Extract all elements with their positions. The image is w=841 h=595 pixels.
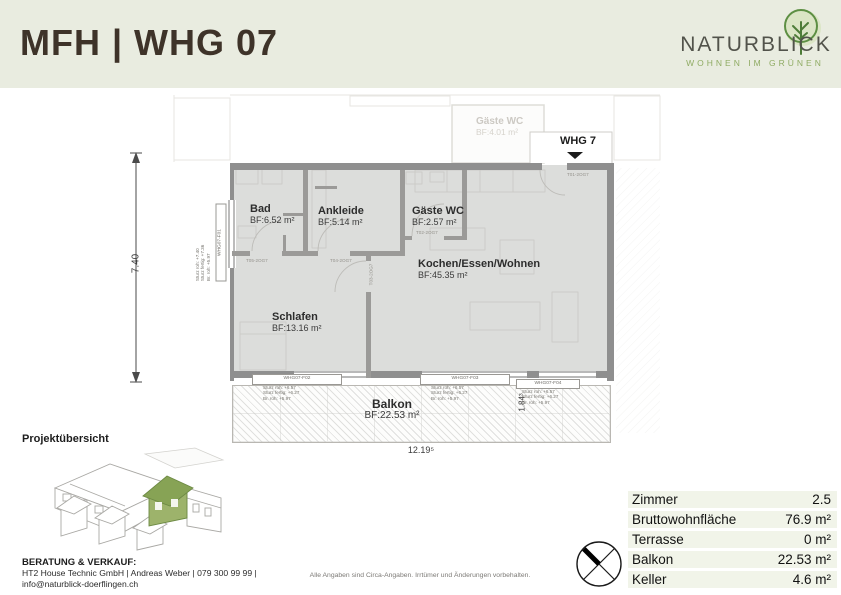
summary-label: Balkon: [632, 552, 673, 567]
window-data-f01: Sturz roh: +7.40 Sturz fertig: +7.36 Br.…: [195, 199, 211, 281]
neighbor-room-name: Gäste WC: [476, 116, 523, 127]
window-data-line: Br. roh: +5.97: [263, 396, 299, 401]
room-name: Ankleide: [318, 205, 364, 217]
summary-value: 0 m²: [804, 532, 831, 547]
window-data-f02: Sturz roh: +6.57 Sturz fertig: +6.27 Br.…: [263, 385, 299, 401]
summary-value: 76.9 m²: [785, 512, 831, 527]
summary-label: Keller: [632, 572, 667, 587]
project-overview-image: [25, 446, 225, 551]
door-label-t04: T04-2OG7: [330, 258, 352, 263]
summary-row-keller: Keller 4.6 m²: [628, 571, 837, 588]
door-label-t02: T02-2OG7: [416, 230, 438, 235]
room-label-gaeste-wc: Gäste WC BF:2.57 m²: [412, 205, 464, 228]
brand-name: NATURBLICK: [680, 33, 832, 57]
summary-row-zimmer: Zimmer 2.5: [628, 491, 837, 508]
room-area: BF:45.35 m²: [418, 270, 540, 281]
summary-table: Zimmer 2.5 Bruttowohnfläche 76.9 m² Terr…: [628, 491, 837, 591]
window-data-line: Br. roh: +5.97: [206, 199, 211, 281]
project-overview-heading: Projektübersicht: [22, 433, 109, 445]
room-label-bad: Bad BF:6.52 m²: [250, 203, 295, 226]
summary-value: 22.53 m²: [778, 552, 831, 567]
room-name: Bad: [250, 203, 295, 215]
summary-row-balkon: Balkon 22.53 m²: [628, 551, 837, 568]
room-name: Gäste WC: [412, 205, 464, 217]
contact-heading: BERATUNG & VERKAUF:: [22, 557, 257, 568]
room-label-schlafen: Schlafen BF:13.16 m²: [272, 311, 322, 334]
window-data-f04: Sturz roh: +6.57 Sturz fertig: +6.27 Br.…: [522, 389, 558, 405]
page-title: MFH | WHG 07: [20, 22, 278, 64]
brand-logo: NATURBLICK WOHNEN IM GRÜNEN: [672, 4, 832, 84]
neighbor-room-area: BF:4.01 m²: [476, 127, 523, 137]
room-label-balkon: Balkon BF:22.53 m²: [332, 398, 452, 421]
neighbor-room-label: Gäste WC BF:4.01 m²: [476, 116, 523, 137]
summary-label: Bruttowohnfläche: [632, 512, 736, 527]
unit-marker: WHG 7: [548, 135, 608, 147]
dimension-height: 7.40: [131, 224, 142, 304]
room-area: BF:6.52 m²: [250, 215, 295, 226]
summary-row-bruttowohnflaeche: Bruttowohnfläche 76.9 m²: [628, 511, 837, 528]
window-tag-f02: WHG07-F02: [252, 374, 342, 385]
brand-tagline: WOHNEN IM GRÜNEN: [678, 58, 832, 68]
room-area: BF:22.53 m²: [332, 410, 452, 421]
dimension-width: 12.19⁵: [232, 445, 610, 455]
window-data-f03: Sturz roh: +6.57 Sturz fertig: +6.27 Br.…: [431, 385, 467, 401]
room-label-ankleide: Ankleide BF:5.14 m²: [318, 205, 364, 228]
window-tag-f03: WHG07-F03: [420, 374, 510, 385]
north-compass-icon: [573, 538, 625, 590]
contact-line-1: HT2 House Technic GmbH | Andreas Weber |…: [22, 568, 257, 579]
room-area: BF:2.57 m²: [412, 217, 464, 228]
room-name: Kochen/Essen/Wohnen: [418, 258, 540, 270]
door-label-t01: T01-2OG7: [567, 172, 589, 177]
contact-block: BERATUNG & VERKAUF: HT2 House Technic Gm…: [22, 557, 257, 590]
summary-value: 2.5: [812, 492, 831, 507]
window-data-line: Br. roh: +5.97: [522, 400, 558, 405]
window-tag-f04: WHG07-F04: [516, 379, 580, 389]
door-label-t03: T03-2OG7: [369, 250, 374, 300]
door-label-t05: T05-2OG7: [246, 258, 268, 263]
room-area: BF:13.16 m²: [272, 323, 322, 334]
room-name: Schlafen: [272, 311, 322, 323]
room-label-kochen-essen-wohnen: Kochen/Essen/Wohnen BF:45.35 m²: [418, 258, 540, 281]
summary-label: Zimmer: [632, 492, 678, 507]
summary-row-terrasse: Terrasse 0 m²: [628, 531, 837, 548]
summary-label: Terrasse: [632, 532, 684, 547]
summary-value: 4.6 m²: [793, 572, 831, 587]
window-tag-f01: WHG07-F01: [216, 204, 227, 282]
floorplan-sheet: MFH | WHG 07 NATURBLICK WOHNEN IM GRÜNEN: [0, 0, 841, 595]
window-data-line: Br. roh: +5.97: [431, 396, 467, 401]
room-area: BF:5.14 m²: [318, 217, 364, 228]
contact-line-2[interactable]: info@naturblick-doerflingen.ch: [22, 579, 257, 590]
disclaimer-text: Alle Angaben sind Circa-Angaben. Irrtüme…: [270, 572, 570, 579]
